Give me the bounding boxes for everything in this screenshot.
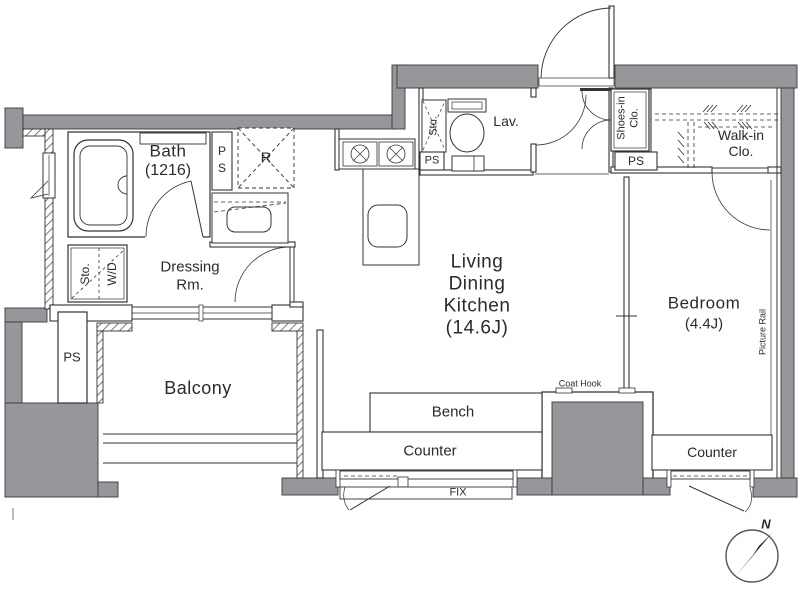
ldk-label-1: Living [451,253,504,272]
ps-lav-label: PS [425,156,440,167]
storage-label: Sto. [79,263,91,284]
balcony-railing [103,434,297,463]
ps-bath-label-s: S [218,162,226,174]
coat-hook-1 [556,388,572,393]
bath-room [68,132,210,237]
ps-left-label: PS [63,351,80,364]
balcony-window [132,305,272,321]
dressing-label-1: Dressing [160,260,219,275]
lav-door-arc [536,95,586,145]
walkin-door-arc [712,172,770,230]
bedroom-size-label: (4.4J) [685,317,723,332]
shoes-label-2: Clo. [630,108,641,128]
fix-window-glass [340,471,513,479]
bench-label: Bench [432,405,475,420]
shoes-label-1: Shoes-in [617,96,628,139]
north-label: N [761,518,770,531]
dressing-label-2: Rm. [176,278,204,293]
counter-bedroom-label: Counter [687,445,737,459]
bath-door-leaf [191,181,203,237]
ldk-size-label: (14.6J) [446,319,509,338]
entrance-door [541,6,614,78]
counter-ldk-label: Counter [403,444,456,459]
compass-icon [726,530,778,582]
bedroom-label: Bedroom [668,295,740,312]
toilet-icon [448,99,486,152]
bath-window [31,153,55,198]
coat-hook-2 [619,388,635,393]
bedroom-window-glass [671,471,750,479]
dressing-door [235,247,294,302]
entrance-door-leaf [609,6,614,78]
kitchen-unit [339,139,419,265]
washer-dryer-label: W/D [106,262,118,285]
walkin-label-1: Walk-in [718,128,764,142]
walkin-label-2: Clo. [729,144,754,158]
kitchen-counter [363,169,419,265]
ps-bath-label-p: P [218,145,226,157]
bedroom-window-swing [689,486,744,511]
lav-label: Lav. [493,114,518,128]
bath-door-arc [146,181,191,237]
coat-hook-label: Coat Hook [559,380,602,389]
fix-label-box [340,487,512,499]
vanity-unit [212,193,288,243]
fix-label: FIX [449,488,466,499]
floor-plan: Bath (1216) P S R Sto. W/D Dressing Rm. … [0,0,800,590]
bath-label: Bath [150,143,187,160]
walkin-door-leaf [712,168,768,173]
refrigerator-label: R [261,151,272,166]
balcony-label: Balcony [164,379,232,397]
bath-size-label: (1216) [145,163,191,179]
lav-cabinet [452,156,484,171]
ps-shoes-label: PS [628,155,644,167]
lav-storage-label: Sto. [429,116,440,136]
entrance-door-arc [541,8,611,78]
entry-step [580,88,613,91]
lavatory [420,95,586,171]
picture-rail-label: Picture Rail [759,309,768,355]
ldk-label-2: Dining [449,275,506,294]
ldk-label-3: Kitchen [444,297,511,316]
bathtub-icon [74,140,133,231]
